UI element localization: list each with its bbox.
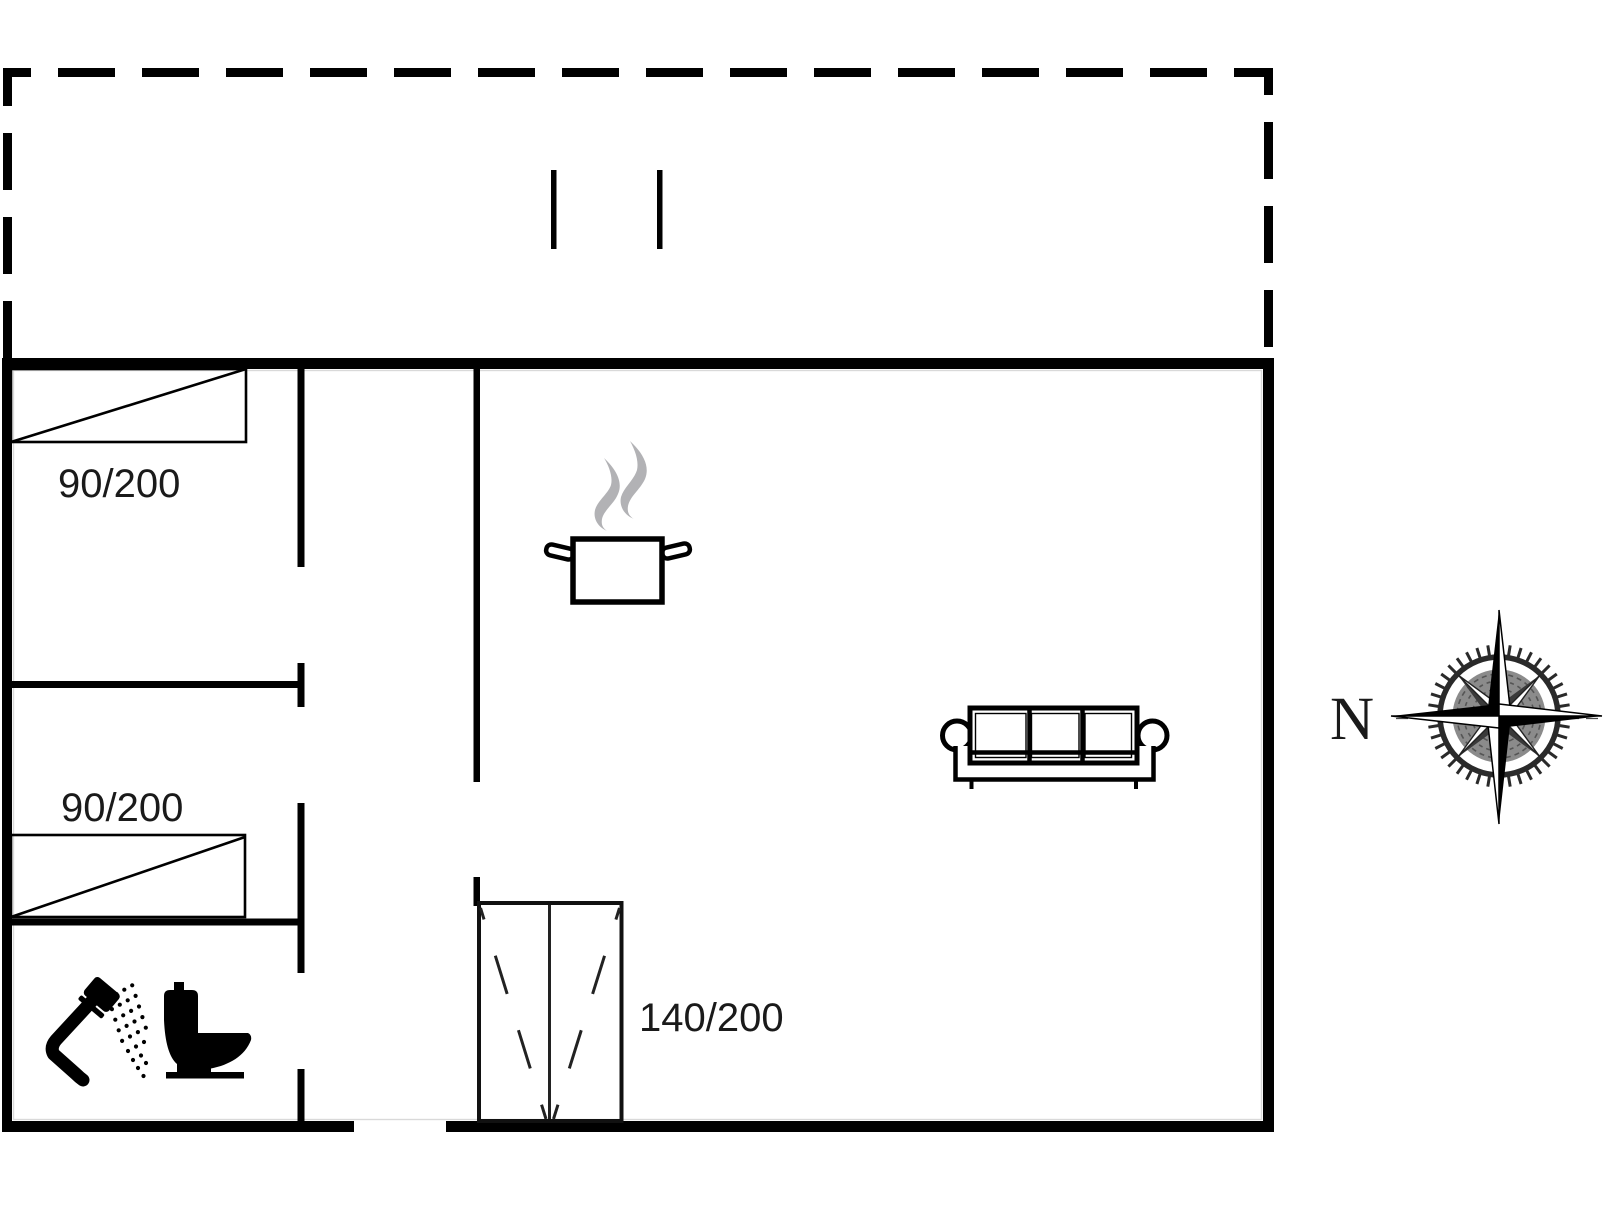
svg-text:90/200: 90/200 bbox=[58, 462, 180, 506]
svg-text:N: N bbox=[1330, 686, 1374, 753]
svg-text:90/200: 90/200 bbox=[61, 786, 183, 830]
svg-text:140/200: 140/200 bbox=[639, 996, 784, 1040]
